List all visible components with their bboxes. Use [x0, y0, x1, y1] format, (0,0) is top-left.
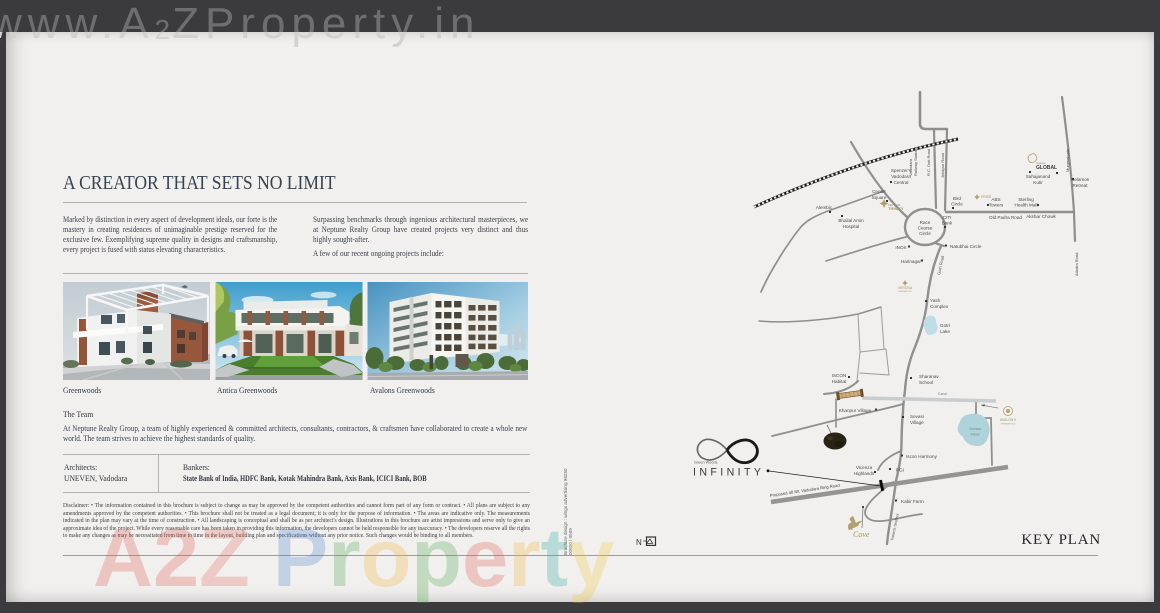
svg-text:Iscon Harmony: Iscon Harmony: [906, 454, 938, 459]
svg-text:Sevasi: Sevasi: [969, 426, 981, 431]
svg-text:Bhailal Amin: Bhailal Amin: [838, 218, 864, 223]
svg-text:INFINITY: INFINITY: [693, 467, 764, 479]
svg-text:Kutir: Kutir: [1033, 180, 1043, 185]
svg-text:Habitat: Habitat: [832, 379, 847, 384]
svg-text:School: School: [919, 380, 933, 385]
svg-text:AVALON 9: AVALON 9: [1000, 418, 1016, 422]
svg-text:Hospital: Hospital: [843, 224, 860, 229]
svg-text:ISCON: ISCON: [832, 373, 847, 378]
svg-text:Circle: Circle: [951, 202, 963, 207]
svg-text:Railway Station: Railway Station: [913, 148, 918, 176]
svg-text:Atladra Road: Atladra Road: [1074, 253, 1079, 276]
svg-text:Race: Race: [920, 220, 931, 225]
svg-text:Retreat: Retreat: [1072, 183, 1088, 188]
svg-text:Sharanav: Sharanav: [919, 374, 939, 379]
svg-text:Center: Center: [872, 189, 886, 194]
svg-text:R.C. Dutt Road: R.C. Dutt Road: [926, 149, 931, 176]
svg-text:GREENWOODS: GREENWOODS: [898, 291, 912, 293]
svg-text:Jetalpur Road: Jetalpur Road: [940, 153, 945, 178]
svg-text:TRINITY: TRINITY: [888, 206, 904, 211]
svg-text:CITI: CITI: [943, 215, 952, 220]
svg-text:Alembic: Alembic: [816, 205, 833, 210]
svg-text:Sterling: Sterling: [1018, 197, 1034, 202]
svg-text:Talav: Talav: [970, 432, 979, 437]
svg-text:N: N: [636, 538, 642, 547]
svg-text:Course: Course: [918, 226, 933, 231]
svg-text:Central: Central: [894, 180, 909, 185]
svg-text:ABS: ABS: [991, 197, 1000, 202]
svg-text:Akshar Chowk: Akshar Chowk: [1026, 214, 1056, 219]
svg-text:Green Woods: Green Woods: [694, 461, 717, 465]
svg-text:VERONA: VERONA: [898, 286, 913, 290]
svg-text:Gotri: Gotri: [940, 323, 950, 328]
svg-text:Bank: Bank: [942, 221, 953, 226]
svg-text:Complex: Complex: [930, 304, 949, 309]
svg-text:Cove: Cove: [853, 530, 870, 539]
svg-text:PGI: PGI: [896, 468, 904, 473]
svg-text:Yash: Yash: [930, 298, 941, 303]
svg-text:GREENWOODS: GREENWOODS: [1001, 424, 1017, 426]
svg-text:Circle: Circle: [919, 231, 931, 236]
svg-text:GLOBAL: GLOBAL: [1036, 165, 1057, 171]
svg-text:Health Mall: Health Mall: [1015, 203, 1038, 208]
svg-text:INOX: INOX: [895, 245, 906, 250]
svg-text:Natubhai Circle: Natubhai Circle: [950, 244, 982, 249]
svg-text:Canal: Canal: [938, 392, 947, 396]
svg-text:Bird: Bird: [953, 196, 962, 201]
svg-text:Towers: Towers: [989, 203, 1004, 208]
svg-text:Kabir Farm: Kabir Farm: [901, 499, 924, 504]
svg-text:Khanpur Village: Khanpur Village: [839, 408, 872, 413]
svg-text:Vicenza: Vicenza: [856, 465, 873, 470]
svg-text:The: The: [848, 527, 854, 531]
svg-text:Sahajanand: Sahajanand: [1026, 174, 1051, 179]
svg-text:Highlands: Highlands: [854, 471, 875, 476]
svg-text:Sevasi: Sevasi: [910, 414, 924, 419]
svg-text:Village: Village: [910, 420, 924, 425]
svg-text:Square: Square: [872, 195, 887, 200]
svg-text:Lake: Lake: [940, 329, 950, 334]
svg-text:Munjmahuda: Munjmahuda: [1065, 148, 1070, 172]
svg-text:Harinagar: Harinagar: [901, 259, 922, 264]
svg-text:Old Padra Road: Old Padra Road: [989, 215, 1022, 220]
